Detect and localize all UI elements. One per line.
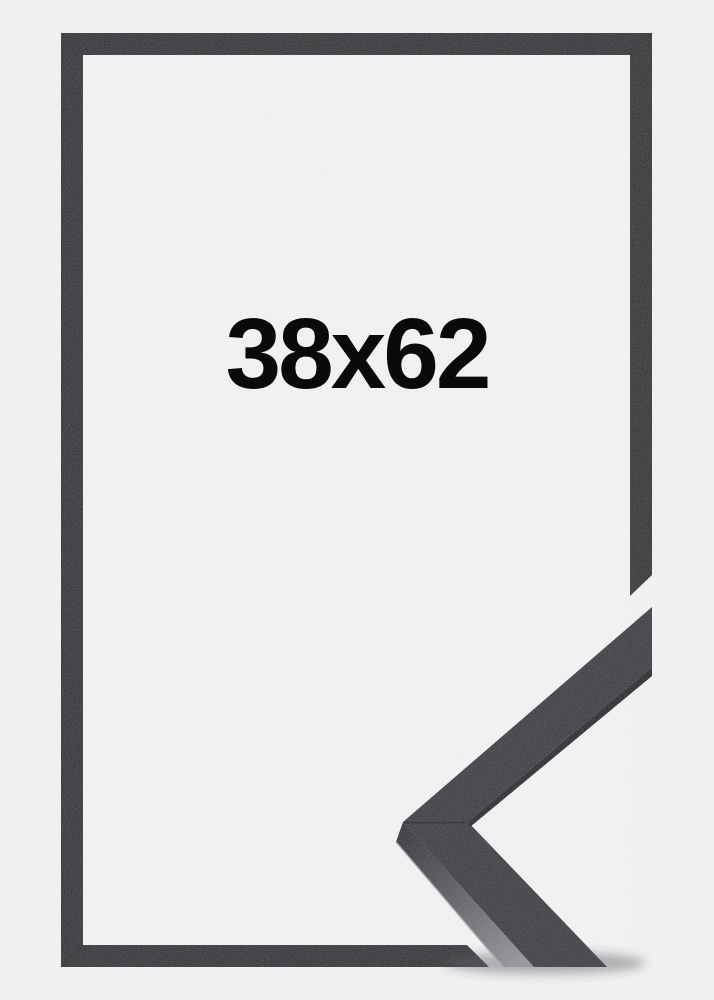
frame-opening xyxy=(83,55,630,945)
frame-size-label: 38x62 xyxy=(0,304,714,404)
frame-render-group xyxy=(61,33,652,974)
frame-graphic-svg xyxy=(0,0,714,1000)
frame-product-image[interactable]: 38x62 xyxy=(0,0,714,1000)
